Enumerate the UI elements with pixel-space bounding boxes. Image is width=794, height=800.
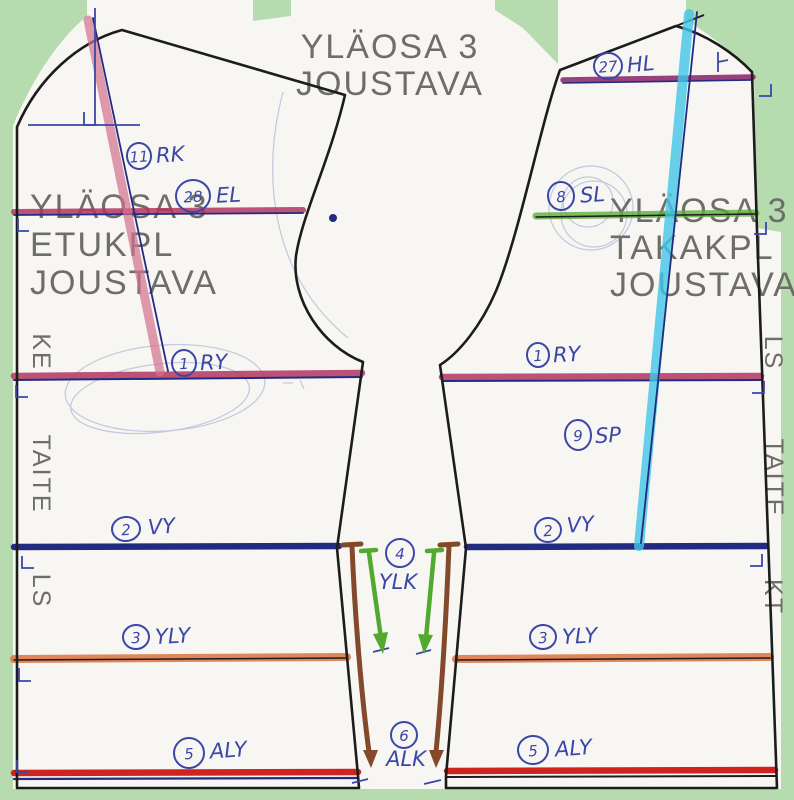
hl-line <box>563 77 753 80</box>
annotation-yly-front: 3 YLY <box>122 622 193 651</box>
svg-text:SL: SL <box>579 182 606 208</box>
aly-line-back <box>447 770 775 771</box>
back-piece-title-line2: TAKAKPL <box>610 229 775 267</box>
svg-text:2: 2 <box>121 521 132 540</box>
svg-text:RY: RY <box>552 342 583 368</box>
ry-line-back <box>442 376 761 377</box>
front-piece-title-line3: JOUSTAVA <box>30 264 218 302</box>
svg-text:6: 6 <box>399 727 409 745</box>
scanned-pattern-sheet: YLÄOSA 3 JOUSTAVA YLÄOSA 3 ETUKPL JOUSTA… <box>0 0 794 800</box>
sheet-title-line2: JOUSTAVA <box>296 65 484 103</box>
svg-text:RY: RY <box>199 350 230 376</box>
svg-text:1: 1 <box>179 355 189 373</box>
front-edge-label-ls: LS <box>27 574 55 609</box>
annotation-rk: 11 RK <box>126 140 187 170</box>
svg-text:EL: EL <box>215 183 241 208</box>
front-edge-label-ke: KE <box>27 333 55 370</box>
back-edge-label-kt: KT <box>759 579 787 615</box>
svg-text:2: 2 <box>543 522 554 541</box>
svg-text:5: 5 <box>528 742 539 761</box>
svg-text:VY: VY <box>566 512 597 538</box>
svg-text:YLY: YLY <box>154 623 193 649</box>
vy-line-front <box>14 546 339 547</box>
svg-text:8: 8 <box>556 188 567 207</box>
back-edge-label-ls: LS <box>759 336 787 371</box>
svg-text:YLK: YLK <box>379 570 420 594</box>
svg-text:HL: HL <box>626 51 655 77</box>
front-edge-label-taite: TAITE <box>27 435 55 514</box>
svg-text:5: 5 <box>184 745 195 764</box>
svg-text:YLY: YLY <box>561 623 600 649</box>
svg-text:ALY: ALY <box>552 735 595 762</box>
svg-text:VY: VY <box>147 513 178 539</box>
aly-line-front <box>14 772 358 773</box>
svg-text:28: 28 <box>183 188 203 207</box>
front-piece-title-line2: ETUKPL <box>30 226 174 264</box>
sheet-title-line1: YLÄOSA 3 <box>301 28 480 66</box>
svg-text:3: 3 <box>538 629 548 647</box>
svg-text:27: 27 <box>598 57 619 77</box>
pen-dot <box>329 214 337 222</box>
vy-line-back <box>467 546 766 547</box>
svg-text:ALK: ALK <box>384 747 428 771</box>
el-line <box>14 210 303 212</box>
svg-text:9: 9 <box>573 427 583 445</box>
svg-text:ALY: ALY <box>207 737 250 764</box>
svg-text:SP: SP <box>594 423 622 448</box>
svg-text:1: 1 <box>533 347 543 365</box>
svg-text:11: 11 <box>129 147 149 166</box>
svg-text:4: 4 <box>395 545 405 563</box>
svg-text:3: 3 <box>131 629 141 647</box>
back-piece-title-line3: JOUSTAVA <box>610 266 794 304</box>
svg-text:RK: RK <box>155 142 187 168</box>
annotation-yly-back: 3 YLY <box>529 622 600 651</box>
